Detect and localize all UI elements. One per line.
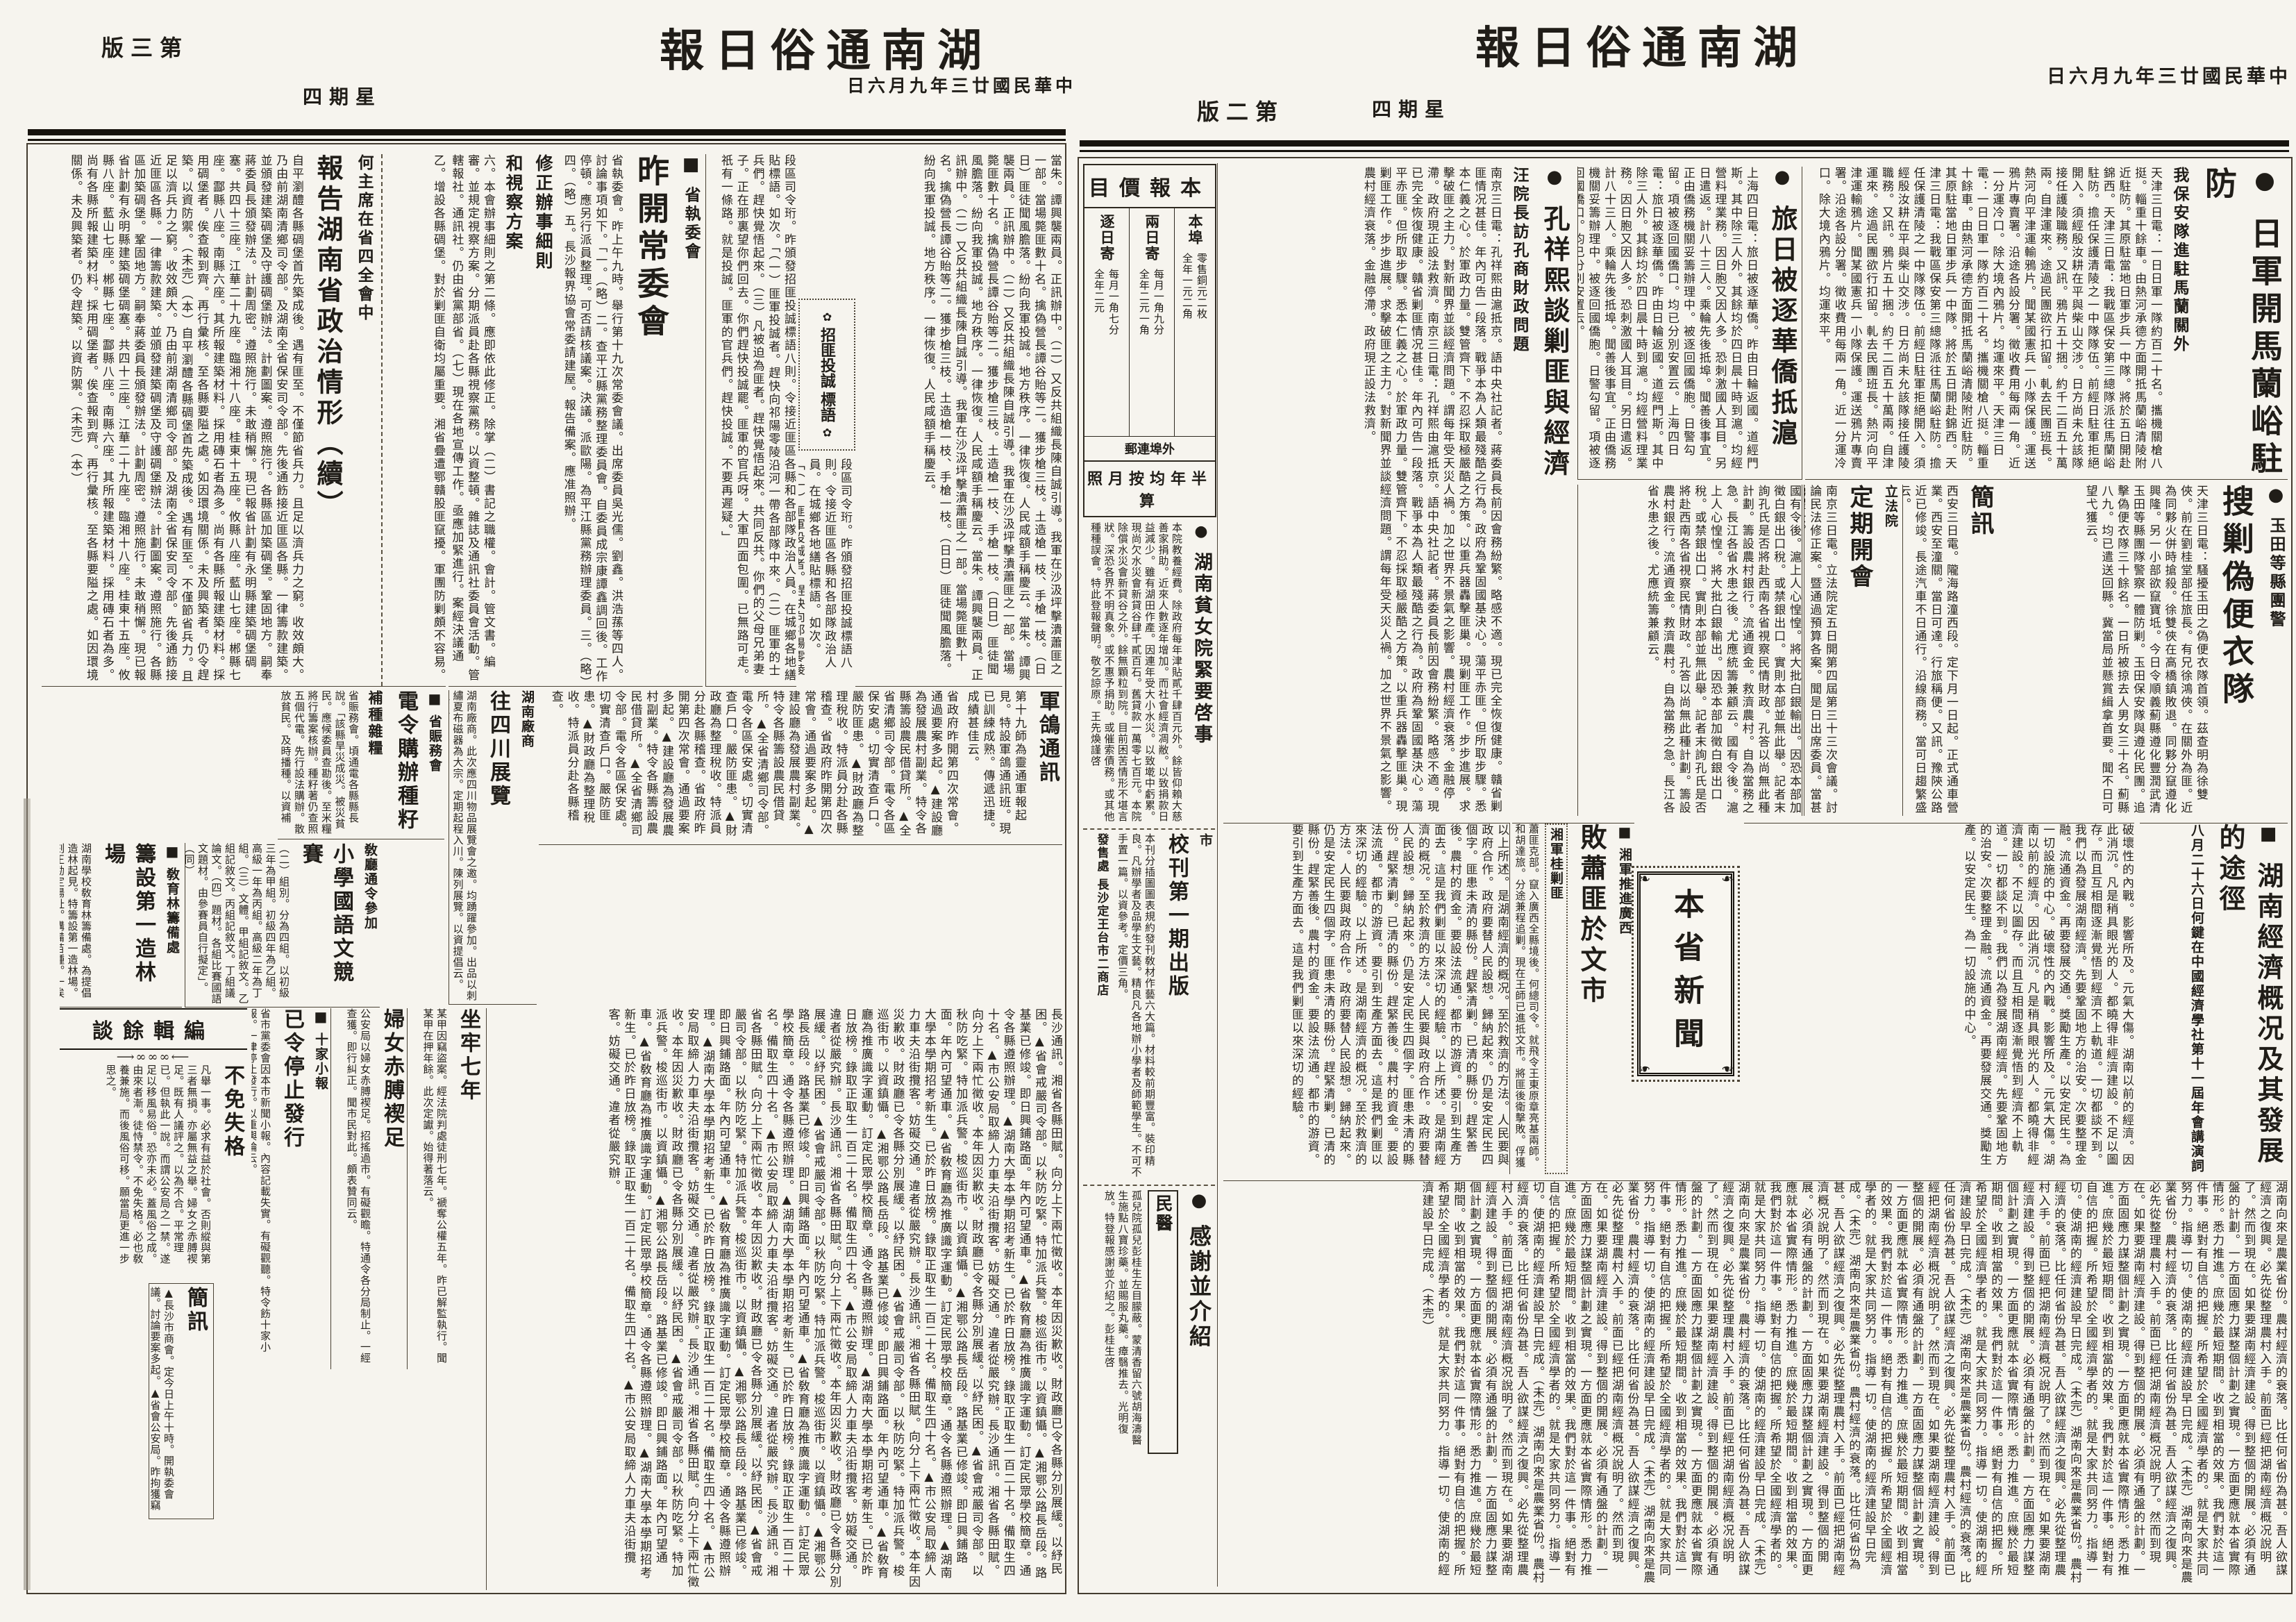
section-marker-square-icon: ■ xyxy=(426,690,443,708)
article-headline: 校刊第一期出版 xyxy=(1161,833,1191,1180)
headline-text: 湖南經濟概况及其發展的途徑 xyxy=(2215,823,2284,1167)
price-col-alt-label: 兩日寄 xyxy=(1141,208,1162,262)
page3-weekday: 星期四 xyxy=(229,82,382,110)
section-marker-circle-icon: ● xyxy=(1192,522,1210,543)
page2-masthead-rule xyxy=(1080,140,2289,152)
headline-text: 感謝並介紹 xyxy=(1186,1224,1212,1349)
section-marker-circle-icon: ● xyxy=(2265,485,2286,508)
wavy-divider xyxy=(1083,1185,1215,1186)
article-executive-committee-meeting: ■ 省執委會 昨開常委會 省執委會。昨上午九時。舉行第十九次常委會議。出席委員吳… xyxy=(449,154,703,687)
leaf-ornament-icon: ❧ xyxy=(1638,871,1650,888)
article-kicker: ● 玉田等縣團警 xyxy=(2264,485,2288,816)
article-headline: 簡訊 xyxy=(180,1287,210,1516)
wavy-divider xyxy=(1083,828,1215,830)
article-kicker: 八月二十六日何鍵在中國經濟學社第十一屆年會講演詞 xyxy=(2188,823,2206,1174)
page3-masthead: 湖南通俗日報 xyxy=(639,15,1014,79)
article-kicker: ■ 十家小報 xyxy=(312,1008,330,1369)
kicker-text: 省執委會 xyxy=(682,186,701,261)
article-body: 湖南廠商。此次應四川物品展覽會之邀。均踴躍參加。出品以刺繡夏布磁器為大宗。定期起… xyxy=(449,690,478,1004)
article-kicker: ■ 敎育林籌備處 xyxy=(163,843,182,1007)
editorial-divider-decoration-icon: ⟶∞∞∞⟵ xyxy=(60,1050,247,1064)
page2-label: 第二版 xyxy=(1146,94,1284,126)
provincial-news-label: 本省新聞 xyxy=(1664,888,1708,1060)
price-col-daily-label: 逐日寄 xyxy=(1096,208,1117,262)
price-col-mail-header: 外埠連郵 xyxy=(1084,436,1215,460)
leaf-ornament-icon: ❧ xyxy=(1721,1060,1734,1077)
headline-text: 湖南貧女院緊要啓事 xyxy=(1191,552,1212,746)
article-headline: 電令購辦種籽 xyxy=(390,690,421,839)
price-table: 本報價目 逐日寄 每月一角七分 全年二元 兩日寄 每月一角九分 全年二元一角 本… xyxy=(1083,164,1216,517)
article-kicker: ■ 省賑務會 xyxy=(426,690,444,839)
article-body: 南京三日電。立法院定五日開第四屆第三十三次會議。討論民法修正案。暨通過預算各案。… xyxy=(1804,485,1838,816)
section-marker-square-icon: ■ xyxy=(680,154,701,178)
article-slogans-continued: 段區司令珩。昨頒發招匪投誠標語八則。令接近匪區各縣和各部隊政治人員。在城鄉各地繕… xyxy=(798,458,853,686)
page2-masthead: 湖南通俗日報 xyxy=(1444,12,1840,76)
provincial-news-box: ❧ ❧ ❧ ❧ 本省新聞 xyxy=(1637,871,1734,1076)
article-headline: 婦女赤膊褉足 xyxy=(376,1008,407,1369)
article-headline: 敗蕭匪於文市 xyxy=(1573,823,1611,1174)
article-bandit-suppression-report: 當朱。譚興襲兩員。正訊辦中。（二）又反共組織長陳自誠引導。我軍在沙汲坪擊潰蕭匪之… xyxy=(855,154,1062,687)
article-body: 段區司令珩。昨頒發招匪投誠標語八則。令接近匪區各縣和各部隊政治人員。在城鄉各地繕… xyxy=(717,154,796,686)
article-kong-xiangxi-economy: ● 孔祥熙談剿匪與經濟 汪院長訪孔商財政問題 南京三日電：孔祥熙由滬抵京。語中央… xyxy=(1223,167,1574,816)
article-body: 本刊分插圖圖表規約發刊敎材作藝六大篇。材料較前期豐富。裝印精良。凡辦學者及品學生… xyxy=(1116,833,1157,1180)
article-brief-news-right: 簡訊 西安三日電。隴海路潼西段。定下月一日起。正式通車營業。西安至潼關。當日可達… xyxy=(1902,485,1997,816)
editorial-section: 編輯餘談 ⟶∞∞∞⟵ 不免失格 凡舉一事。必求有益於社會。否則縱與第三者無損。亦… xyxy=(60,1008,247,1279)
article-headline: 往四川展覽 xyxy=(483,690,513,1004)
article-body: 段區司令珩。昨頒發招匪投誠標語八則。令接近匪區各縣和各部隊政治人員。在城鄉各地繕… xyxy=(798,458,853,686)
section-marker-square-icon: ■ xyxy=(164,843,181,861)
price-col-alt-value: 每月一角九分 全年二元一角 xyxy=(1137,262,1166,335)
article-body: 以上所述。是湖南經濟的概况。至於救濟的方法。人民要與政府合作。政府要替人民設想。… xyxy=(1288,823,1509,1174)
editorial-subhead: 不免失格 xyxy=(217,1064,247,1273)
editorial-title: 編輯餘談 xyxy=(60,1008,247,1050)
kicker-text: 敎育林籌備處 xyxy=(165,867,180,955)
article-body: 自平瀏醴各縣碉堡首先築成後。遇有匪至。不僅節省兵力。且足以濟兵力之窮。收效頗大。… xyxy=(67,154,304,686)
article-relief-committee-seeds: ■ 省賑務會 電令購辦種籽 補種雜糧 省賑務會。頃通電各縣縣長說。「該縣旱災成災… xyxy=(278,690,444,839)
headline-text: 日軍開馬蘭峪駐防 xyxy=(2200,167,2284,479)
flower-ornament-icon: ✿ xyxy=(821,310,834,324)
price-col-daily-value: 每月一角七分 全年二元 xyxy=(1092,262,1121,335)
leaf-ornament-icon: ❧ xyxy=(1721,871,1734,888)
article-overseas-chinese-expelled: ● 旅日被逐華僑抵滬 上海四日電：旅日被逐華僑。昨由日輪返國。道經門斯。其中除三… xyxy=(1577,167,1802,480)
article-headline: 籌設第一造林場 xyxy=(97,843,158,1007)
section-marker-circle-icon: ● xyxy=(2251,167,2279,200)
price-cell-local: 本埠 零售銅元二枚 全年一元二角 xyxy=(1175,208,1215,436)
article-hunan-economy-body-c: 以上所述。是湖南經濟的概况。至於救濟的方法。人民要與政府合作。政府要替人民設想。… xyxy=(1223,823,1510,1174)
article-body: 破壞性的內戰。影響所及。元氣大傷。湖南以前的經濟。因此消沉。凡是稍具眼光的人。都… xyxy=(1961,823,2134,1174)
article-headline: ● 旅日被逐華僑抵滬 xyxy=(1763,167,1802,479)
editorial-body-block: 不免失格 凡舉一事。必求有益於社會。否則縱與第三者無損。亦屬無益之舉。婦女之赤膊… xyxy=(60,1064,247,1273)
article-subhead: 補種雜糧 xyxy=(364,690,385,839)
article-forestry-station: ■ 敎育林籌備處 籌設第一造林場 湖南學校敎育林籌備處。為提倡造林起見。特籌設第… xyxy=(60,843,182,1008)
article-seven-years-prison: 坐牢七年 某甲因竊盜案。經法院判處徒刑七年。褫奪公權五年。昨已解監執行。聞某甲在… xyxy=(411,1008,483,1369)
article-body: 當朱。譚興襲兩員。正訊辦中。（二）又反共組織長陳自誠引導。我軍在沙汲坪擊潰蕭匪之… xyxy=(920,154,1062,686)
article-subhead: 民醫 xyxy=(1148,1190,1178,1454)
article-headline: 定期開會 xyxy=(1843,485,1877,816)
page3-masthead-rule xyxy=(28,129,1066,141)
article-headline: 坐牢七年 xyxy=(453,1008,483,1369)
article-headline: 搜剿偽便衣隊 xyxy=(2213,485,2259,816)
article-headline: ● 湖南貧女院緊要啓事 xyxy=(1188,522,1215,826)
article-body: 長沙通訊。湘省各縣田賦。向分上下兩忙徵收。本年因災歉收。財政廳已令各縣分別展緩。… xyxy=(605,1008,1063,1590)
seller-line: 發售處 長沙定王台市二商店 xyxy=(1093,833,1111,1180)
kicker-text: 湘軍推進廣西 xyxy=(1617,848,1632,935)
article-body: 湖南學校敎育林籌備處。為提倡造林起見。特籌設第一造林場。刻正勘定場址。購備苗種。… xyxy=(60,843,92,1007)
article-headline: 小學國語文競賽 xyxy=(295,843,356,1007)
article-kicker: ■ 省執委會 xyxy=(679,154,703,686)
article-body: 南京三日電：孔祥熙由滬抵京。語中央社記者。蔣委員長前因會務紛繁。略感不適。現已完… xyxy=(1360,167,1502,816)
headline-text: 孔祥熙談剿匪與經濟 xyxy=(1539,205,1570,480)
price-table-body: 逐日寄 每月一角七分 全年二元 兩日寄 每月一角九分 全年二元一角 本埠 零售銅… xyxy=(1084,208,1215,436)
section-marker-square-icon: ■ xyxy=(2258,823,2279,848)
article-body: 某甲因竊盜案。經法院判處徒刑七年。褫奪公權五年。昨已解監執行。聞某甲在押年餘。此… xyxy=(421,1008,448,1369)
article-body: 六。本會辦事細則之第二條。應即依此修正。除掌（二）書記之職權。會計。管文書。編審… xyxy=(449,154,496,686)
article-poor-girls-institute-notice: ● 湖南貧女院緊要啓事 本院教養經費。除政府每年津貼貳千肆百元外。餘皆仰賴大慈善… xyxy=(1083,522,1215,826)
article-governor-political-report: 乙。增設各縣碉堡。對於剿匪自衛均屬重要。湘省疊遭鄂贛股匪竄擾。軍團防剿頗不容易。… xyxy=(42,154,446,687)
article-body: 蕭匪克部。竄入廣西全縣境後。何總司令。就飛令王東原章亮基兩師。和胡達旅。分途兼程… xyxy=(1512,823,1540,1174)
article-body: （二）組別。分為四組。以初級三年為甲組。初級四年為乙組。高級一年為丙組。高級二年… xyxy=(185,843,290,1007)
column-rule xyxy=(1217,163,1218,1587)
article-body: 上海四日電：旅日被逐華僑。昨由日輪返國。道經門斯。其中除三人外。其餘均於四日晨十… xyxy=(1577,167,1759,479)
article-tabloids-banned: ■ 十家小報 已令停止發行 省市黨委會因本市新聞小報。內容記載失實。有礙觀聽。特… xyxy=(251,1008,331,1369)
article-hunan-economy-headline-block: ■ 湖南經濟概况及其發展的途徑 八月二十六日何鍵在中國經濟學社第十一屆年會講演詞 xyxy=(2140,823,2288,1174)
price-table-title: 本報價目 xyxy=(1084,165,1215,208)
article-body: 本院教養經費。除政府每年津貼貳千肆百元外。餘皆仰賴大慈善家捐助。近來人數逐年增加… xyxy=(1089,522,1184,826)
article-headline: ● 感謝並介紹 xyxy=(1183,1190,1215,1454)
kicker-text: 十家小報 xyxy=(313,1032,328,1091)
article-primary-school-language-contest: 敎廳通令參加 小學國語文競賽 （二）組別。分為四組。以初級三年為甲組。初級四年為… xyxy=(185,843,380,1008)
article-kicker: 敎廳通令參加 xyxy=(361,843,380,1007)
page2-weekday: 星期四 xyxy=(1312,94,1451,122)
article-body: 公安局以婦女赤膊褉足。招搖過市。有礙觀瞻。特通令各分局制止。一經查獲。即行糾正。… xyxy=(344,1008,371,1369)
section-marker-circle-icon: ● xyxy=(1189,1190,1209,1214)
article-body: 第十九師為靈通軍報起見。特設軍鴿通訊班。現已訓練成熟。傳遞迅捷。成績甚佳云。 xyxy=(964,690,1027,844)
article-subhead: 和視察方案 xyxy=(501,154,526,686)
article-body: 天津三日電：騷擾玉田之偽便衣隊首領。茲查明為徐雙俠。前在劉桂堂部任旅長。有兄徐鴻… xyxy=(2082,485,2209,816)
section-marker-square-icon: ■ xyxy=(1616,823,1633,842)
article-kicker: 市 xyxy=(1196,833,1215,1180)
article-legislative-yuan-meeting: 立法院 定期開會 南京三日電。立法院定五日開第四屆第三十三次會議。討論民法修正案… xyxy=(1804,485,1900,816)
article-body: 天津三日電：一日日軍一隊約百二十名。攜機關槍八挺。輜重十餘車。由熱河承德方面開抵… xyxy=(1815,167,2163,479)
article-headline: ● 日軍開馬蘭峪駐防 xyxy=(2196,167,2288,479)
page2-dateline: 中華民國廿三年九月六日 xyxy=(1861,61,2291,88)
article-headline: 軍鴿通訊 xyxy=(1032,690,1062,844)
ornament-sublabel: 標語 xyxy=(818,392,836,422)
article-body: ▲長沙市商會。定今日上午十時。開執委會議。討論要案多起。▲省會公安局。昨拘獲竊犯… xyxy=(149,1287,175,1516)
article-body: 省執委會。昨上午九時。舉行第十九次常委會議。出席委員吳光儒。劉鑫。洪浩蓀等四人。… xyxy=(560,154,623,686)
article-misc-briefs-bottom: 長沙通訊。湘省各縣田賦。向分上下兩忙徵收。本年因災歉收。財政廳已令各縣分別展緩。… xyxy=(486,1008,1063,1590)
page3-dateline: 中華民國廿三年九月六日 xyxy=(778,72,1076,97)
article-kicker: ■ 湘軍推進廣西 xyxy=(1616,823,1634,1174)
article-body: 省政府昨開第四次常會。通過要案多起。▲建設廳為發展農村副業。特令各縣籌設農民借貸… xyxy=(548,690,959,844)
article-misc-briefs-band2: 軍鴿通訊 第十九師為靈通軍報起見。特設軍鴿通訊班。現已訓練成熟。傳遞迅捷。成績甚… xyxy=(539,690,1062,845)
newspaper-scan: 第三版 星期四 湖南通俗日報 中華民國廿三年九月六日 當朱。譚興襲兩員。正訊辦中… xyxy=(0,0,2296,1622)
price-cell-mail-alt: 兩日寄 每月一角九分 全年二元一角 xyxy=(1130,208,1175,436)
article-doctor-thanks: ● 感謝並介紹 民醫 孤兒院孤兒彭桂生左目朦蔽。蒙清香留六號胡海濤醫生施點八寶珍… xyxy=(1083,1190,1215,1454)
editorial-body: 凡舉一事。必求有益於社會。否則縱與第三者無損。亦屬無益之舉。婦女之赤膊褉足。既有… xyxy=(103,1064,212,1273)
leaf-ornament-icon: ❧ xyxy=(1638,1060,1650,1077)
article-subhead: 湘軍桂剿匪 xyxy=(1545,823,1568,1174)
article-kicker: 我保安隊進駐馬蘭關外 xyxy=(2168,167,2191,479)
article-body: 西安三日電。隴海路潼西段。定下月一日起。正式通車營業。西安至潼關。當日可達。行旅… xyxy=(1902,485,1959,816)
page3-label: 第三版 xyxy=(36,31,189,62)
section-marker-circle-icon: ● xyxy=(1544,167,1565,192)
article-kicker: 立法院 xyxy=(1882,485,1900,816)
ornament-label: 招匪投誠 xyxy=(818,327,836,388)
price-cell-mail-daily: 逐日寄 每月一角七分 全年二元 xyxy=(1084,208,1130,436)
kicker-text: 玉田等縣團警 xyxy=(2267,517,2286,629)
article-surrender-slogans: 段區司令珩。昨頒發招匪投誠標語八則。令接近匪區各縣和各部隊政治人員。在城鄉各地繕… xyxy=(705,154,796,687)
article-plainclothes-squad-hunt: ● 玉田等縣團警 搜剿偽便衣隊 天津三日電：騷擾玉田之偽便衣隊首領。茲查明為徐雙… xyxy=(2000,485,2288,816)
article-body: 孤兒院孤兒彭桂生左目朦蔽。蒙清香留六號胡海濤醫生施點八寶珍藥。並賜服丸藥。瘴翳推… xyxy=(1103,1190,1143,1454)
article-body: 省市黨委會因本市新聞小報。內容記載失實。有礙觀聽。特令飭十家小報。一律停止發行。… xyxy=(251,1008,271,1369)
article-school-journal-published: 市 校刊第一期出版 本刊分插圖圖表規約發刊敎材作藝六大篇。材料較前期豐富。裝印精… xyxy=(1083,833,1215,1180)
section-marker-square-icon: ■ xyxy=(312,1008,329,1026)
ornament-content: ✿ 招匪投誠 標語 ✿ xyxy=(816,310,838,439)
article-headline: 報告湖南省政治情形（續） xyxy=(309,154,347,686)
kicker-text: 省賑務會 xyxy=(427,714,442,773)
article-kicker: 湖南廠商 xyxy=(518,690,537,1004)
scan-artifact-streak xyxy=(24,799,31,1590)
price-col-local-value: 零售銅元二枚 全年一元二角 xyxy=(1180,246,1209,319)
article-headline: ■ 湖南經濟概况及其發展的途徑 xyxy=(2211,823,2288,1174)
article-headline: 簡訊 xyxy=(1963,485,1997,816)
article-body: 國有令後。滬上人心惶惶。將大批白銀輸出。因恐本部加徵白銀出口稅。或禁銀出口。實則… xyxy=(1643,485,1802,816)
flower-ornament-icon: ✿ xyxy=(821,426,834,439)
article-headline: 昨開常委會 xyxy=(628,154,674,686)
article-kicker: 何主席在省四全會中 xyxy=(352,154,383,686)
article-xiao-bandits-defeated: ■ 湘軍推進廣西 敗蕭匪於文市 湘軍桂剿匪 蕭匪克部。竄入廣西全縣境後。何總司令… xyxy=(1512,823,1634,1174)
section-marker-circle-icon: ● xyxy=(1772,167,1793,192)
article-sichuan-exhibition: 湖南廠商 往四川展覽 湖南廠商。此次應四川物品展覽會之邀。均踴躍參加。出品以刺繡… xyxy=(449,690,537,1005)
article-japanese-troops-malanyu: ● 日軍開馬蘭峪駐防 我保安隊進駐馬蘭關外 天津三日電：一日日軍一隊約百二十名。… xyxy=(1805,167,2288,480)
article-hunan-economy-body-b: 湖南向來是農業省份。農村經濟的衰落。比任何省份為甚。吾人欲謀經濟之復興。必先從整… xyxy=(1223,1180,2288,1589)
article-brief-news-left: 簡訊 ▲長沙市商會。定今日上午十時。開執委會議。討論要案多起。▲省會公安局。昨拘… xyxy=(149,1283,214,1519)
article-women-bare-feet: 婦女赤膊褉足 公安局以婦女赤膊褉足。招搖過市。有礙觀瞻。特通令各分局制止。一經查… xyxy=(335,1008,408,1369)
article-body: 湖南向來是農業省份。農村經濟的衰落。比任何省份為甚。吾人欲謀經濟之復興。必先從整… xyxy=(1418,1181,2288,1589)
article-headline: 已令停止發行 xyxy=(276,1008,307,1369)
article-subhead: 修正辦事細則 xyxy=(530,154,555,686)
article-body: 省賑務會。頃通電各縣縣長說。「該縣旱災成災。被災貧民。應候委員查勘後。至米糧將行… xyxy=(278,690,360,839)
article-hunan-economy-body-a: 破壞性的內戰。影響所及。元氣大傷。湖南以前的經濟。因此消沉。凡是稍具眼光的人。都… xyxy=(1744,823,2134,1174)
price-col-local-label: 本埠 xyxy=(1184,208,1205,246)
article-kicker: 汪院長訪孔商財政問題 xyxy=(1507,167,1531,816)
article-kong-continued: 國有令後。滬上人心惶惶。將大批白銀輸出。因恐本部加徵白銀出口稅。或禁銀出口。實則… xyxy=(1577,485,1802,816)
price-table-footer: 半年均按月照算 xyxy=(1084,460,1215,516)
headline-text: 旅日被逐華僑抵滬 xyxy=(1767,205,1798,449)
surrender-slogan-ornament: ✿ 招匪投誠 標語 ✿ xyxy=(798,299,855,451)
article-headline: ● 孔祥熙談剿匪與經濟 xyxy=(1536,167,1574,816)
article-lead: 乙。增設各縣碉堡。對於剿匪自衛均屬重要。湘省疊遭鄂贛股匪竄擾。軍團防剿頗不容易。 xyxy=(387,154,446,686)
